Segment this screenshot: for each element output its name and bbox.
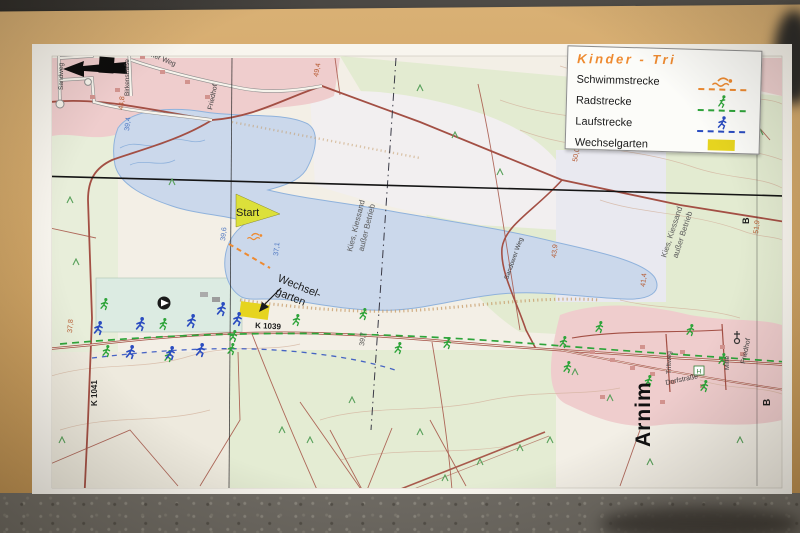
legend-box: Kinder - Tri Schwimmstrecke Radstrecke L… [565,45,763,154]
wechselgarten-swatch [707,139,734,151]
spot-height-label: 39,4 [124,117,132,131]
spot-height-label: 44,8 [118,96,126,110]
spot-height-label: 39,6 [220,227,228,241]
street-label-birkenstrasse: Birkenstraße [124,59,131,96]
b-marker-south: B [762,399,773,406]
camping-site-icon [158,297,171,310]
road-label-k1039: K 1039 [255,321,282,331]
cyclist-icon [715,94,728,108]
street-label-triftweg: Triftweg [666,351,673,374]
swimmer-icon [710,76,734,88]
village-label-arnim: Arnim [632,381,655,447]
street-label-sandweg: Sandweg [58,63,65,90]
shadow-bottom-right [600,507,800,533]
start-label: Start [236,207,259,219]
spot-height-label: 43,9 [551,244,559,258]
spot-height-label: 51,9 [753,220,761,234]
runner-icon [715,115,728,129]
road-label-k1041: K 1041 [90,380,99,406]
legend-title: Kinder - Tri [577,51,752,69]
spot-height-label: 45,3 [563,30,572,45]
photo-scene: H 49,445,350,044,843,941,451,937,839,439… [0,0,800,533]
street-label-mitte: Mitte [724,356,731,370]
spot-height-label: 39,7 [359,332,367,346]
spot-height-label: 37,1 [273,242,281,256]
b-marker-north: B [741,217,751,224]
spot-height-label: 37,8 [67,319,75,333]
spot-height-label: 41,4 [640,273,648,287]
